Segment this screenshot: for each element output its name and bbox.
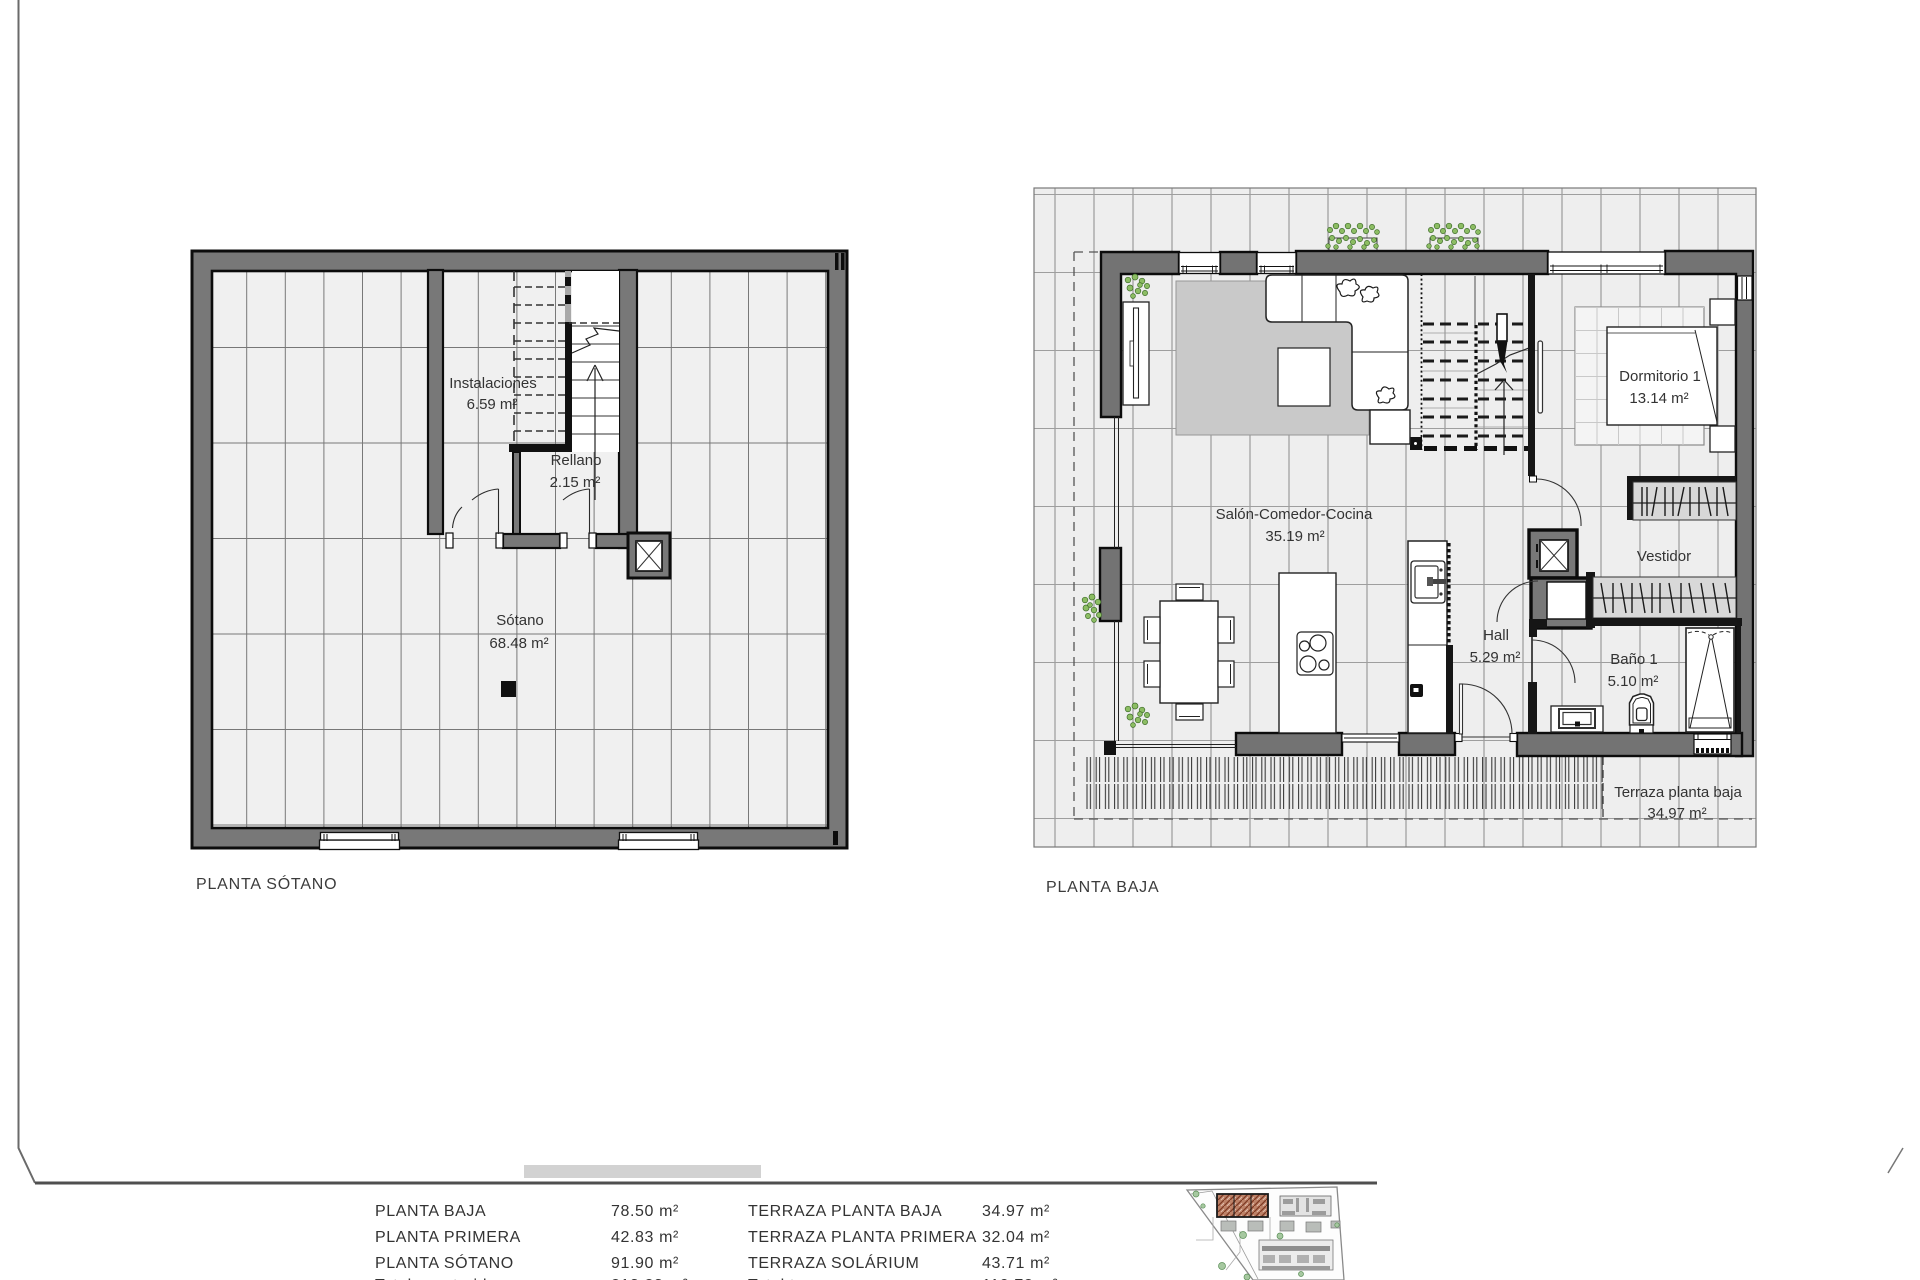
svg-text:Hall: Hall — [1483, 627, 1509, 644]
svg-text:TERRAZA PLANTA PRIMERA: TERRAZA PLANTA PRIMERA — [748, 1229, 977, 1246]
svg-text:Rellano: Rellano — [551, 452, 602, 469]
svg-text:Sótano: Sótano — [496, 612, 544, 629]
svg-text:34.97 m²: 34.97 m² — [1647, 805, 1706, 822]
svg-text:13.14 m²: 13.14 m² — [1629, 390, 1688, 407]
svg-text:TERRAZA SOLÁRIUM: TERRAZA SOLÁRIUM — [748, 1253, 919, 1272]
svg-text:PLANTA BAJA: PLANTA BAJA — [375, 1203, 486, 1220]
svg-text:6.59 m²: 6.59 m² — [467, 396, 518, 413]
svg-text:PLANTA BAJA: PLANTA BAJA — [1046, 879, 1159, 896]
svg-text:Instalaciones: Instalaciones — [449, 375, 537, 392]
svg-text:Terraza planta baja: Terraza planta baja — [1614, 784, 1742, 801]
svg-text:42.83 m²: 42.83 m² — [611, 1229, 679, 1246]
svg-text:Vestidor: Vestidor — [1637, 548, 1691, 565]
svg-text:PLANTA SÓTANO: PLANTA SÓTANO — [375, 1253, 514, 1272]
svg-text:TERRAZA PLANTA BAJA: TERRAZA PLANTA BAJA — [748, 1203, 942, 1220]
svg-text:5.10 m²: 5.10 m² — [1608, 673, 1659, 690]
svg-text:43.71 m²: 43.71 m² — [982, 1255, 1050, 1272]
svg-text:PLANTA PRIMERA: PLANTA PRIMERA — [375, 1229, 521, 1246]
svg-text:34.97 m²: 34.97 m² — [982, 1203, 1050, 1220]
svg-text:68.48 m²: 68.48 m² — [489, 635, 548, 652]
svg-text:Baño 1: Baño 1 — [1610, 651, 1658, 668]
svg-text:78.50 m²: 78.50 m² — [611, 1203, 679, 1220]
svg-text:Salón-Comedor-Cocina: Salón-Comedor-Cocina — [1216, 506, 1373, 523]
svg-text:91.90 m²: 91.90 m² — [611, 1255, 679, 1272]
svg-text:Dormitorio 1: Dormitorio 1 — [1619, 368, 1701, 385]
svg-text:5.29 m²: 5.29 m² — [1470, 649, 1521, 666]
svg-text:PLANTA SÓTANO: PLANTA SÓTANO — [196, 874, 337, 893]
svg-text:35.19 m²: 35.19 m² — [1265, 528, 1324, 545]
svg-text:32.04 m²: 32.04 m² — [982, 1229, 1050, 1246]
svg-text:2.15 m²: 2.15 m² — [550, 474, 601, 491]
